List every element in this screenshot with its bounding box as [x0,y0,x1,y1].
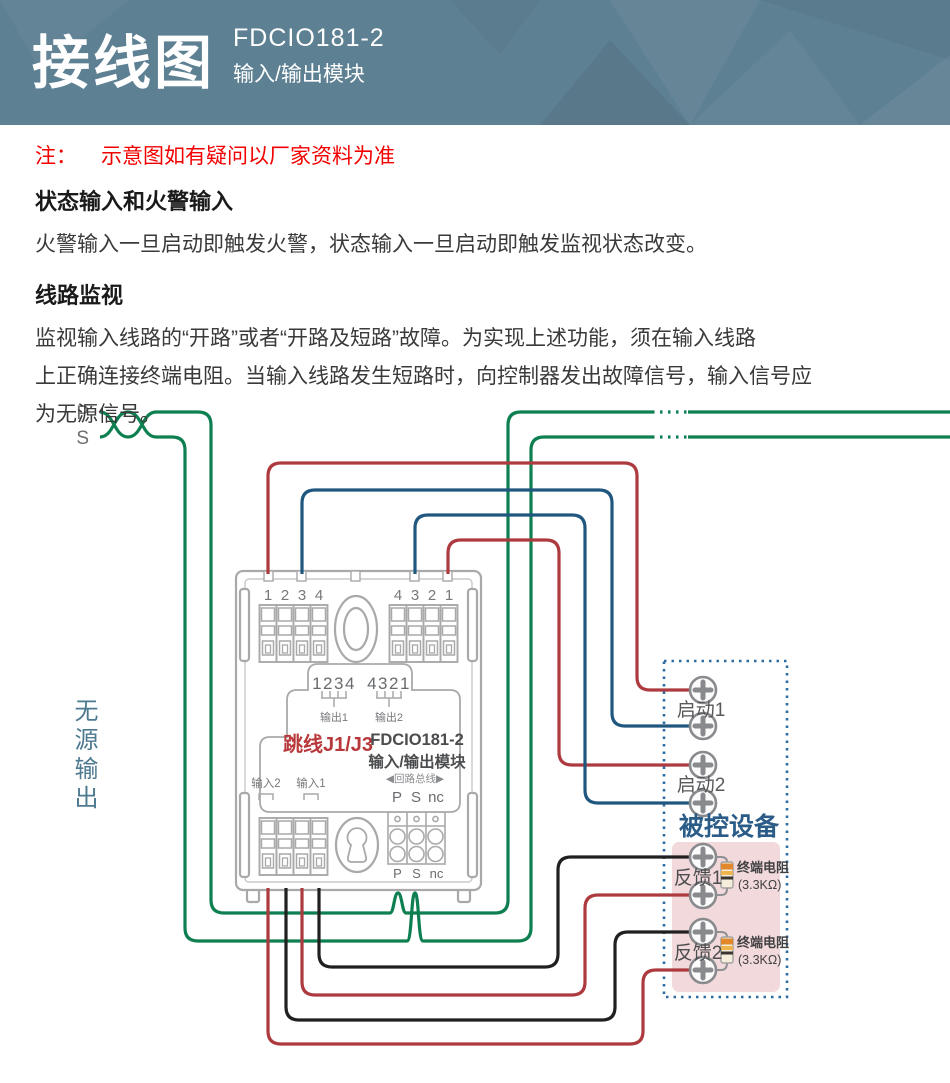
feedback2-top-terminal [690,919,716,945]
start1-label: 启动1 [677,699,726,721]
module-slot [468,793,477,877]
svg-text:1: 1 [264,587,272,604]
resistor1-label: 终端电阻 [737,860,789,875]
feedback1-top-terminal [690,844,716,870]
resistor2-value: (3.3KΩ) [738,953,781,967]
terminal-block-bottom-left [260,818,328,875]
input1-label: 输入1 [296,776,325,790]
passive-output-label: 无源输出 [66,698,101,814]
svg-text:1: 1 [445,587,453,604]
module-slot [240,589,249,661]
intro-text: 注：示意图如有疑问以厂家资料为准 状态输入和火警输入 火警输入一旦启动即触发火警… [35,130,920,434]
keyhole-shape [348,828,367,862]
module-model: FDCIO181-2 [370,731,464,749]
svg-text:S: S [411,789,421,806]
loop-connector [388,812,445,864]
wire-notch [351,571,360,581]
svg-text:nc: nc [428,789,444,806]
svg-text:2: 2 [281,587,289,604]
resistor1 [721,862,733,888]
note-text: 示意图如有疑问以厂家资料为准 [101,145,395,168]
heading-line-monitor: 线路监视 [35,278,920,310]
page-header: 接线图 FDCIO181-2 输入/输出模块 [0,0,950,125]
resistor2 [721,937,733,963]
svg-text:P: P [393,866,402,881]
svg-text:3: 3 [411,587,419,604]
start2-label: 启动2 [677,774,726,796]
svg-text:4: 4 [315,587,323,604]
header-subtitle-block: FDCIO181-2 输入/输出模块 [233,24,385,88]
terminal-block-top-right [390,605,458,662]
connector-pin-labels: P S nc [393,866,444,881]
input2-label: 输入2 [251,776,280,790]
svg-text:P: P [392,789,402,806]
svg-text:2: 2 [428,587,436,604]
module-name: 输入/输出模块 [368,752,466,771]
paragraph-2: 监视输入线路的“开路”或者“开路及短路”故障。为实现上述功能，须在输入线路 上正… [35,320,920,434]
terminal-block-top-left [260,605,328,662]
output2-plus-wire [448,540,690,765]
jumper-label: 跳线J1/J3 [283,732,373,756]
module-slot [240,793,249,877]
heading-status-input: 状态输入和火警输入 [35,184,920,216]
paragraph-1: 火警输入一旦启动即触发火警，状态输入一旦启动即触发监视状态改变。 [35,226,920,264]
note-line: 注：示意图如有疑问以厂家资料为准 [35,140,920,170]
svg-text:nc: nc [430,866,444,881]
output2-label: 输出2 [375,710,403,724]
product-name: 输入/输出模块 [233,58,385,88]
output1-label: 输出1 [320,710,348,724]
svg-text:S: S [412,866,421,881]
page-title: 接线图 [32,16,215,100]
loop-bus-label: ◀回路总线▶ [386,772,445,785]
jumper-numbers-right: 4321 [367,674,411,693]
feedback2-label: 反馈2 [674,942,723,964]
feedback1-label: 反馈1 [674,867,723,889]
feedback2-black-wire [286,888,690,1020]
resistor1-value: (3.3KΩ) [738,878,781,892]
resistor2-label: 终端电阻 [737,935,789,950]
mounting-oval-inner [344,608,368,650]
jumper-numbers-left: 1234 [312,674,356,693]
panel-pin-labels: P S nc [392,789,444,806]
note-prefix: 注： [35,145,77,168]
controlled-device-label: 被控设备 [679,813,780,841]
svg-text:4: 4 [394,587,402,604]
module-slot [468,589,477,661]
product-model: FDCIO181-2 [233,24,385,53]
svg-text:3: 3 [298,587,306,604]
